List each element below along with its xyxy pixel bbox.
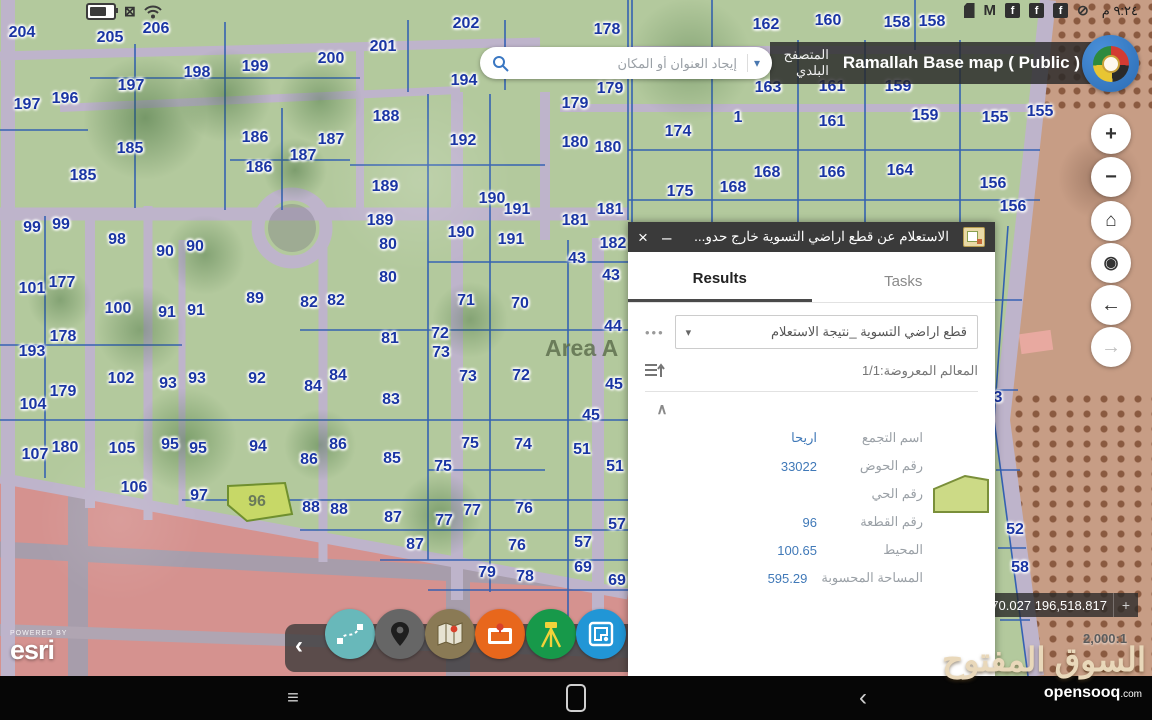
parcel-number: 191	[504, 201, 531, 219]
sketch-route-tool[interactable]	[325, 609, 375, 659]
parcel-number: 179	[562, 95, 589, 113]
attribute-value: اريحا	[791, 430, 817, 446]
attribute-label: رقم القطعة	[831, 514, 923, 530]
parcel-number: 161	[819, 113, 846, 131]
parcel-number: 90	[156, 243, 174, 261]
parcel-number: 190	[479, 190, 506, 208]
sd-card-icon	[964, 3, 975, 18]
opensooq-watermark-latin: opensooq.com	[1044, 684, 1142, 702]
attribute-value: 96	[803, 515, 817, 530]
parcel-number: 180	[52, 439, 79, 457]
zoom-out-button[interactable]: −	[1091, 157, 1131, 197]
parcel-map-tool[interactable]	[576, 609, 626, 659]
features-shown-count: المعالم المعروضة:1/1	[665, 363, 978, 379]
parcel-number: 73	[432, 344, 450, 362]
parcel-number: 189	[367, 212, 394, 230]
parcel-number: 205	[97, 29, 124, 47]
mute-icon: ⊘	[1077, 2, 1089, 19]
home-button[interactable]: ⌂	[1091, 201, 1131, 241]
close-icon[interactable]: ×	[638, 229, 648, 246]
parcel-number: 188	[373, 108, 400, 126]
panel-header: × – الاستعلام عن قطع اراضي التسوية خارج …	[628, 222, 995, 252]
parcel-number: 178	[50, 328, 77, 346]
android-status-bar: ⊠ M f f f ⊘ ٩:٢٤ م	[0, 0, 1152, 22]
parcel-number: 106	[121, 479, 148, 497]
tab-tasks[interactable]: Tasks	[812, 273, 996, 302]
search-dropdown-caret-icon[interactable]: ▾	[754, 56, 760, 70]
parcel-number: 1	[734, 109, 743, 127]
parcel-number: 72	[512, 367, 530, 385]
no-sim-icon: ⊠	[124, 3, 136, 20]
basemap-tool[interactable]	[425, 609, 475, 659]
attribute-value: 100.65	[777, 543, 817, 558]
forward-button[interactable]: →	[1091, 327, 1131, 367]
back-nav-button[interactable]: ‹	[848, 676, 878, 720]
parcel-number: 185	[117, 140, 144, 158]
parcel-number: 181	[562, 212, 589, 230]
zoom-in-button[interactable]: +	[1091, 114, 1131, 154]
parcel-number: 77	[435, 512, 453, 530]
parcel-number: 88	[302, 499, 320, 517]
locate-button[interactable]: ◉	[1091, 243, 1131, 283]
municipal-browser-label: المتصفح البلدي	[782, 47, 829, 79]
result-layer-select[interactable]: ▾ قطع اراضي التسوية _نتيجة الاستعلام	[675, 315, 978, 349]
home-square-icon	[566, 684, 586, 712]
parcel-number: 57	[608, 516, 626, 534]
search-bar[interactable]: ▾	[480, 47, 772, 79]
survey-tool[interactable]	[526, 609, 576, 659]
parcel-number: 190	[448, 224, 475, 242]
attribute-row: 100.65المحيط	[628, 536, 995, 564]
android-nav-bar: ≡ ‹	[0, 676, 1152, 720]
parcel-number: 77	[463, 502, 481, 520]
parcel-number: 168	[754, 164, 781, 182]
collapse-chevron-icon[interactable]: ∧	[652, 400, 672, 418]
parcel-number: 186	[242, 129, 269, 147]
attribute-label: المحيط	[831, 542, 923, 558]
attribute-label: رقم الحوض	[831, 458, 923, 474]
divider	[747, 54, 748, 72]
tools-toolbar: ‹	[285, 624, 628, 672]
location-pin-tool[interactable]	[375, 609, 425, 659]
parcel-number: 189	[372, 178, 399, 196]
parcel-number: 92	[248, 370, 266, 388]
parcel-number: 85	[383, 450, 401, 468]
parcel-number: 155	[982, 109, 1009, 127]
parcel-number: 91	[187, 302, 205, 320]
parcel-number: 200	[318, 50, 345, 68]
attribute-label: المساحة المحسوبة	[821, 570, 923, 586]
attribute-value: 33022	[781, 459, 817, 474]
wifi-icon	[144, 5, 162, 19]
facebook-icon: f	[1053, 3, 1068, 18]
opensooq-watermark-arabic: السوق المفتوح	[942, 640, 1146, 679]
parcel-number: 180	[595, 139, 622, 157]
highlighted-parcel-96[interactable]	[228, 483, 292, 521]
parcel-number: 178	[594, 21, 621, 39]
parcel-number: 72	[431, 325, 449, 343]
parcel-number: 180	[562, 134, 589, 152]
parcel-number: 84	[329, 367, 347, 385]
parcel-number: 197	[14, 96, 41, 114]
parcel-number: 86	[300, 451, 318, 469]
attribute-label: اسم التجمع	[831, 430, 923, 446]
panel-title: الاستعلام عن قطع اراضي التسوية خارج حدو.…	[685, 229, 949, 245]
parcel-number: 179	[597, 80, 624, 98]
parcel-number: 80	[379, 236, 397, 254]
parcel-number: 94	[249, 438, 267, 456]
powered-by-label: POWERED BY	[10, 630, 67, 637]
panel-tabs: Results Tasks	[628, 252, 995, 303]
attribute-value: 595.29	[768, 571, 808, 586]
parcel-number: 45	[582, 407, 600, 425]
parcel-number: 107	[22, 446, 49, 464]
parcel-number: 191	[498, 231, 525, 249]
map-title: Ramallah Base map ( Public )	[843, 53, 1080, 73]
parcel-number: 93	[159, 375, 177, 393]
parcel-number: 87	[384, 509, 402, 527]
parcel-number: 87	[406, 536, 424, 554]
toolbar-collapse-icon[interactable]: ‹	[295, 632, 303, 660]
chevron-down-icon: ▾	[686, 326, 692, 339]
parcel-number: 204	[9, 24, 36, 42]
battery-icon	[86, 3, 116, 20]
parcel-number: 82	[300, 294, 318, 312]
parcel-number: 199	[242, 58, 269, 76]
query-tool-icon	[963, 227, 985, 247]
media-pin-tool[interactable]	[475, 609, 525, 659]
parcel-number: 100	[105, 300, 132, 318]
parcel-number: 43	[568, 250, 586, 268]
parcel-number: 156	[980, 175, 1007, 193]
parcel-number: 159	[912, 107, 939, 125]
parcel-number: 82	[327, 292, 345, 310]
parcel-number: 81	[381, 330, 399, 348]
parcel-number: 201	[370, 38, 397, 56]
parcel-number: 75	[434, 458, 452, 476]
tab-results[interactable]: Results	[628, 270, 812, 302]
search-icon[interactable]	[492, 55, 509, 72]
sort-list-icon[interactable]	[645, 363, 665, 379]
parcel-number: 91	[158, 304, 176, 322]
parcel-number: 104	[20, 396, 47, 414]
parcel-number: 57	[574, 534, 592, 552]
search-input[interactable]	[517, 56, 741, 71]
parcel-number: 99	[52, 216, 70, 234]
esri-attribution: POWERED BY esri	[10, 630, 67, 664]
parcel-number: 88	[330, 501, 348, 519]
parcel-number: 74	[514, 436, 532, 454]
parcel-number: 105	[109, 440, 136, 458]
parcel-number: 168	[720, 179, 747, 197]
parcel-number: 75	[461, 435, 479, 453]
parcel-number: 97	[190, 487, 208, 505]
parcel-number: 102	[108, 370, 135, 388]
parcel-number: 95	[161, 436, 179, 454]
parcel-number: 76	[508, 537, 526, 555]
parcel-number: 185	[70, 167, 97, 185]
parcel-number: 187	[318, 131, 345, 149]
title-strip: المتصفح البلدي Ramallah Base map ( Publi…	[770, 42, 1092, 84]
recents-button[interactable]: ≡	[278, 676, 308, 720]
parcel-number: 164	[887, 162, 914, 180]
parcel-number: 177	[49, 274, 76, 292]
parcel-number: 51	[573, 441, 591, 459]
home-nav-button[interactable]	[561, 676, 591, 720]
parcel-number: 99	[23, 219, 41, 237]
query-results-panel: × – الاستعلام عن قطع اراضي التسوية خارج …	[628, 222, 995, 676]
municipality-logo[interactable]	[1082, 35, 1139, 92]
parcel-number: 76	[515, 500, 533, 518]
overflow-menu-icon[interactable]: •••	[645, 325, 665, 340]
parcel-number: 198	[184, 64, 211, 82]
area-a-label: Area A	[545, 335, 618, 361]
parcel-number: 197	[118, 77, 145, 95]
parcel-shape-graphic	[933, 475, 989, 513]
parcel-number: 86	[329, 436, 347, 454]
orchard-texture	[995, 392, 1152, 676]
esri-logo: esri	[10, 637, 67, 664]
parcel-number: 95	[189, 440, 207, 458]
parcel-number: 206	[143, 20, 170, 38]
parcel-number: 175	[667, 183, 694, 201]
parcel-number: 73	[459, 368, 477, 386]
parcel-number: 90	[186, 238, 204, 256]
parcel-number: 181	[597, 201, 624, 219]
clock: ٩:٢٤ م	[1102, 3, 1138, 19]
minimize-icon[interactable]: –	[662, 229, 671, 246]
parcel-number: 193	[19, 343, 46, 361]
parcel-number: 187	[290, 147, 317, 165]
parcel-number: 45	[605, 376, 623, 394]
parcel-number: 43	[602, 267, 620, 285]
parcel-number: 166	[819, 164, 846, 182]
parcel-number: 70	[511, 295, 529, 313]
parcel-number: 84	[304, 378, 322, 396]
parcel-number: 196	[52, 90, 79, 108]
parcel-number: 186	[246, 159, 273, 177]
attribute-row: 595.29المساحة المحسوبة	[628, 564, 995, 592]
parcel-number: 71	[457, 292, 475, 310]
parcel-number: 101	[19, 280, 46, 298]
parcel-number: 89	[246, 290, 264, 308]
parcel-number: 44	[604, 318, 622, 336]
facebook-icon: f	[1005, 3, 1020, 18]
parcel-number: 192	[450, 132, 477, 150]
parcel-number: 179	[50, 383, 77, 401]
attribute-label: رقم الحي	[831, 486, 923, 502]
result-layer-value: قطع اراضي التسوية _نتيجة الاستعلام	[699, 324, 967, 340]
crosshair-icon[interactable]: +	[1113, 593, 1138, 617]
parcel-number: 93	[188, 370, 206, 388]
parcel-number: 98	[108, 231, 126, 249]
parcel-number: 156	[1000, 198, 1027, 216]
facebook-icon: f	[1029, 3, 1044, 18]
back-button[interactable]: ←	[1091, 285, 1131, 325]
parcel-number: 80	[379, 269, 397, 287]
parcel-number: 194	[451, 72, 478, 90]
parcel-number: 51	[606, 458, 624, 476]
parcel-number: 182	[600, 235, 627, 253]
parcel-number: 96	[248, 493, 266, 511]
parcel-number: 83	[382, 391, 400, 409]
parcel-number: 69	[608, 572, 626, 590]
gmail-icon: M	[984, 2, 997, 19]
parcel-number: 174	[665, 123, 692, 141]
parcel-number: 69	[574, 559, 592, 577]
attribute-row: اريحااسم التجمع	[628, 424, 995, 452]
